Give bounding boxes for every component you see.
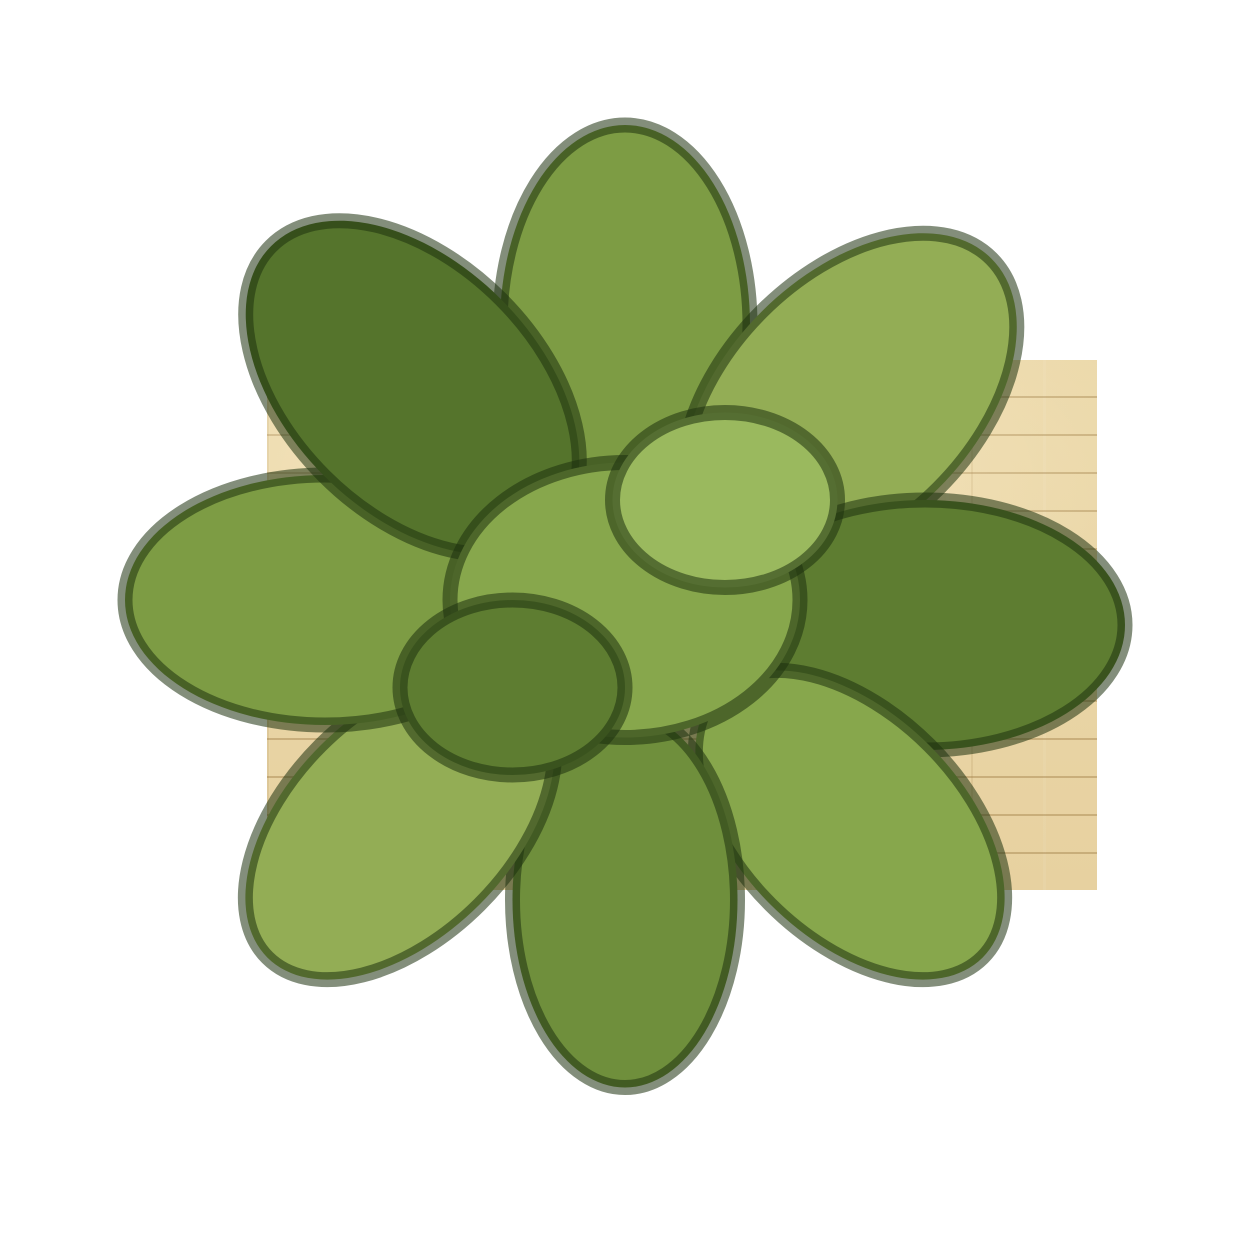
potted-plant [0, 0, 1250, 1200]
floor-plan [0, 0, 1250, 1250]
